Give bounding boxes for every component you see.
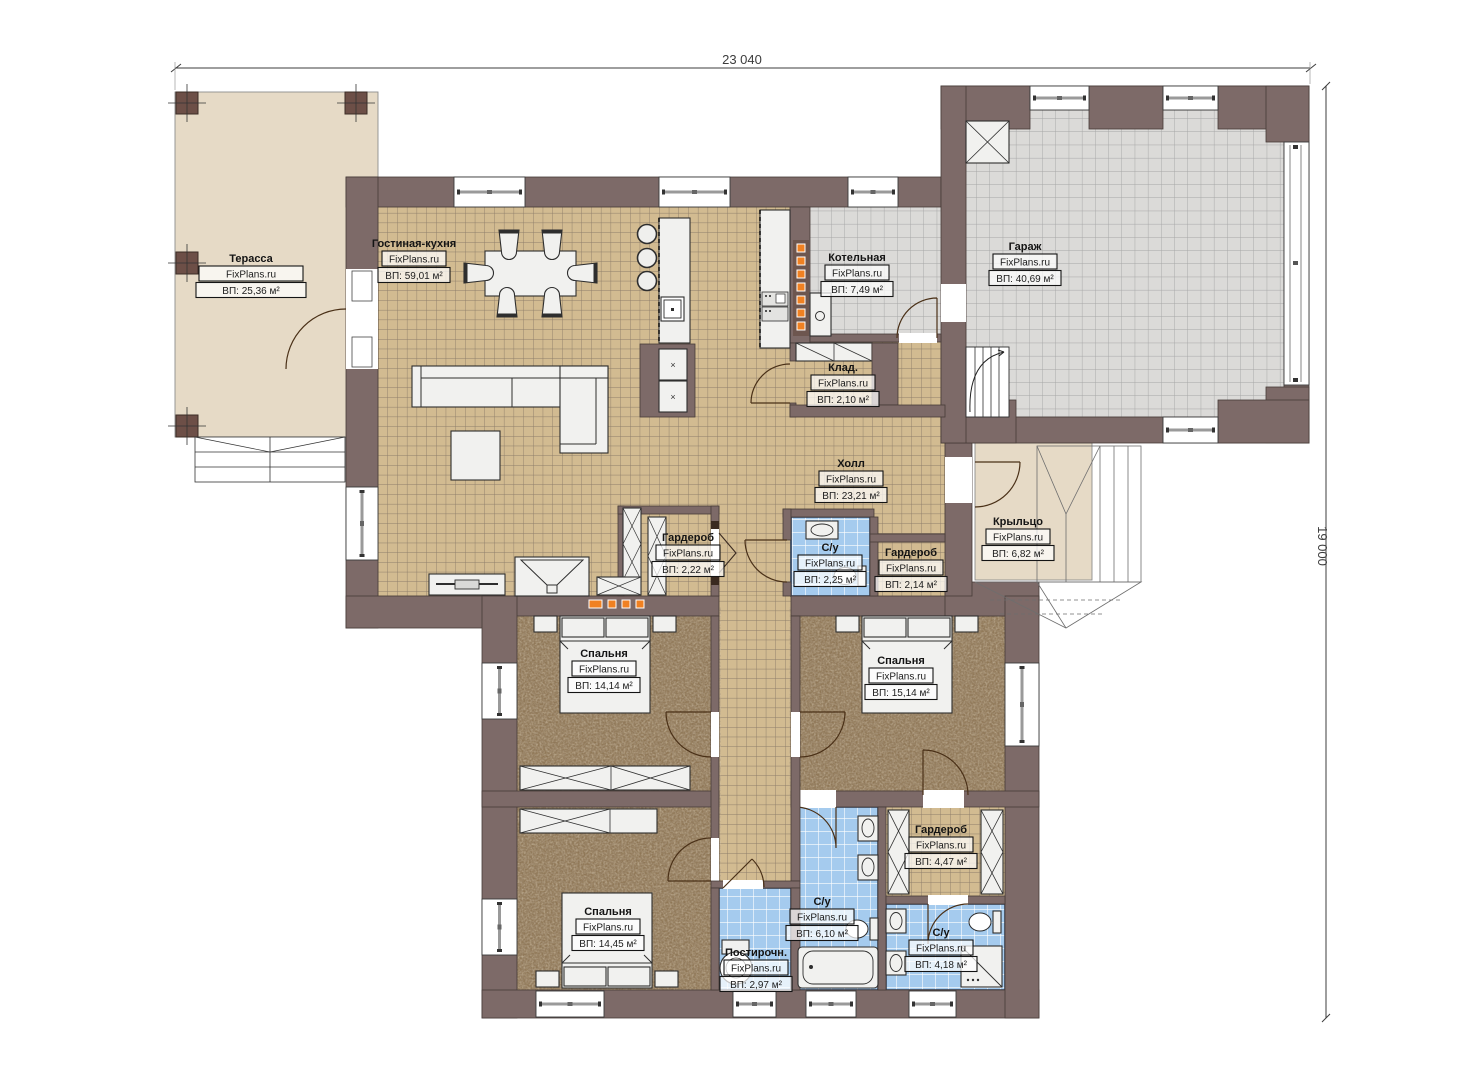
svg-text:FixPlans.ru: FixPlans.ru xyxy=(583,923,633,934)
svg-text:ВП: 4,47 м²: ВП: 4,47 м² xyxy=(915,857,968,868)
svg-text:ВП: 23,21 м²: ВП: 23,21 м² xyxy=(822,491,880,502)
svg-text:ВП: 59,01 м²: ВП: 59,01 м² xyxy=(385,271,443,282)
svg-text:ВП: 14,14 м²: ВП: 14,14 м² xyxy=(575,681,633,692)
svg-text:FixPlans.ru: FixPlans.ru xyxy=(579,665,629,676)
svg-text:FixPlans.ru: FixPlans.ru xyxy=(797,913,847,924)
svg-text:FixPlans.ru: FixPlans.ru xyxy=(226,270,276,281)
svg-text:Гараж: Гараж xyxy=(1009,241,1042,253)
svg-text:Гардероб: Гардероб xyxy=(662,532,714,544)
svg-text:19 000: 19 000 xyxy=(1315,526,1330,566)
svg-text:Спальня: Спальня xyxy=(584,906,632,918)
svg-text:FixPlans.ru: FixPlans.ru xyxy=(886,564,936,575)
svg-text:FixPlans.ru: FixPlans.ru xyxy=(826,475,876,486)
svg-text:FixPlans.ru: FixPlans.ru xyxy=(805,559,855,570)
svg-text:ВП: 14,45 м²: ВП: 14,45 м² xyxy=(579,939,637,950)
svg-text:Гардероб: Гардероб xyxy=(915,824,967,836)
svg-text:FixPlans.ru: FixPlans.ru xyxy=(832,269,882,280)
svg-text:FixPlans.ru: FixPlans.ru xyxy=(876,672,926,683)
svg-text:С/у: С/у xyxy=(932,927,950,939)
svg-text:ВП: 15,14 м²: ВП: 15,14 м² xyxy=(872,688,930,699)
svg-text:FixPlans.ru: FixPlans.ru xyxy=(389,255,439,266)
svg-text:FixPlans.ru: FixPlans.ru xyxy=(818,379,868,390)
svg-text:ВП: 2,22 м²: ВП: 2,22 м² xyxy=(662,565,715,576)
svg-text:С/у: С/у xyxy=(813,896,831,908)
svg-text:Клад.: Клад. xyxy=(828,362,858,374)
svg-text:×: × xyxy=(670,360,675,370)
svg-text:FixPlans.ru: FixPlans.ru xyxy=(1000,258,1050,269)
svg-text:ВП: 2,97 м²: ВП: 2,97 м² xyxy=(730,980,783,991)
svg-text:ВП: 6,10 м²: ВП: 6,10 м² xyxy=(796,929,849,940)
svg-text:ВП: 2,25 м²: ВП: 2,25 м² xyxy=(804,575,857,586)
svg-text:FixPlans.ru: FixPlans.ru xyxy=(663,549,713,560)
svg-text:ВП: 40,69 м²: ВП: 40,69 м² xyxy=(996,274,1054,285)
svg-text:Спальня: Спальня xyxy=(877,655,925,667)
svg-text:Крыльцо: Крыльцо xyxy=(993,516,1043,528)
svg-text:ВП: 25,36 м²: ВП: 25,36 м² xyxy=(222,286,280,297)
svg-text:FixPlans.ru: FixPlans.ru xyxy=(731,964,781,975)
svg-text:ВП: 4,18 м²: ВП: 4,18 м² xyxy=(915,960,968,971)
svg-text:FixPlans.ru: FixPlans.ru xyxy=(916,944,966,955)
svg-text:Постирочн.: Постирочн. xyxy=(725,947,787,959)
svg-text:ВП: 6,82 м²: ВП: 6,82 м² xyxy=(992,549,1045,560)
svg-text:Гардероб: Гардероб xyxy=(885,547,937,559)
svg-text:ВП: 2,10 м²: ВП: 2,10 м² xyxy=(817,395,870,406)
svg-text:Холл: Холл xyxy=(837,458,865,470)
svg-text:С/у: С/у xyxy=(821,542,839,554)
svg-text:FixPlans.ru: FixPlans.ru xyxy=(916,841,966,852)
svg-text:Котельная: Котельная xyxy=(828,252,886,264)
svg-text:FixPlans.ru: FixPlans.ru xyxy=(993,533,1043,544)
svg-text:Гостиная-кухня: Гостиная-кухня xyxy=(372,238,456,250)
svg-text:×: × xyxy=(670,392,675,402)
svg-text:Спальня: Спальня xyxy=(580,648,628,660)
svg-text:23 040: 23 040 xyxy=(722,52,762,67)
svg-text:ВП: 2,14 м²: ВП: 2,14 м² xyxy=(885,580,938,591)
svg-text:Терасса: Терасса xyxy=(229,253,273,265)
svg-text:ВП: 7,49 м²: ВП: 7,49 м² xyxy=(831,285,884,296)
